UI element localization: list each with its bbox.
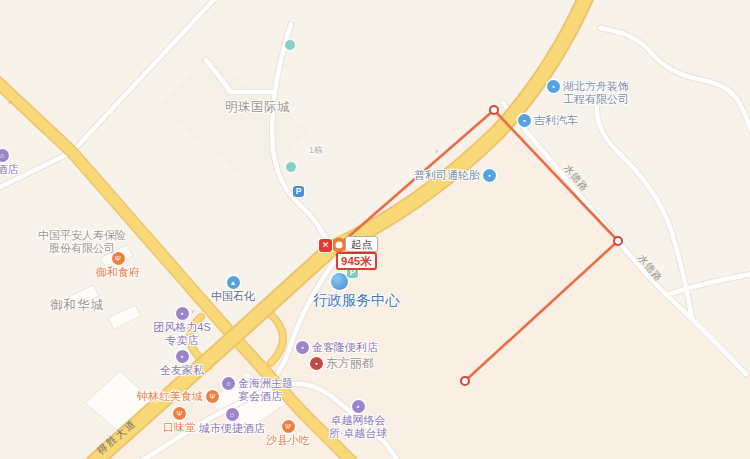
food-icon: Ψ (112, 252, 125, 265)
food-icon: Ψ (173, 407, 186, 420)
poi-bridgestone[interactable]: ▪ 普利司通轮胎 (414, 169, 496, 182)
poi-label: 中国石化 (211, 290, 255, 303)
poi-label: 东方丽都 (326, 357, 374, 370)
car-icon: ▪ (518, 114, 531, 127)
billiards-icon: ▪ (352, 400, 365, 413)
poi-yuhe-restaurant[interactable]: Ψ 御和食府 (96, 252, 140, 279)
poi-label: 湖北方舟装饰工程有限公司 (563, 80, 629, 105)
poi-zhuoyue-club[interactable]: ▪ 卓越网络会所·卓越台球 (326, 400, 390, 439)
gas-station-icon: ▲ (227, 276, 240, 289)
residence-icon: ▪ (310, 357, 323, 370)
poi-quanyou-furniture[interactable]: ▪ 全友家私 (160, 350, 204, 377)
poi-label: 普利司通轮胎 (414, 169, 480, 182)
measure-delete-button[interactable]: ✕ (319, 239, 332, 252)
poi-mingzhu-international[interactable]: 明珠国际城 (225, 101, 290, 114)
poi-label: 御和食府 (96, 266, 140, 279)
poi-dongfang-lidu[interactable]: ▪ 东方丽都 (310, 357, 374, 370)
poi-label: 沙县小吃 (266, 434, 310, 447)
poi-label: 中国平安人寿保险股份有限公司 (38, 229, 126, 254)
food-icon: Ψ (206, 390, 219, 403)
poi-label: 金客隆便利店 (312, 341, 378, 354)
poi-label: 行政服务中心 (313, 291, 400, 310)
poi-label: 明珠国际城 (225, 101, 290, 114)
poi-jinkelong-store[interactable]: ▪ 金客隆便利店 (296, 341, 378, 354)
poi-shaxian-snacks[interactable]: Ψ 沙县小吃 (266, 420, 310, 447)
government-poi-icon (331, 273, 348, 290)
poi-pingan-insurance[interactable]: 中国平安人寿保险股份有限公司 (38, 229, 126, 254)
hotel-icon: ⌂ (226, 408, 239, 421)
shop-icon: ▪ (176, 307, 189, 320)
poi-label: 团风格力4S专卖店 (153, 321, 210, 346)
measure-start-label: 起点 (345, 236, 378, 252)
area-label-yuhe-huacheng: 御和华城 (50, 299, 104, 312)
company-icon: ▪ (547, 80, 560, 93)
poi-label: 御和华城 (50, 299, 104, 312)
poi-label: 大酒店 (0, 163, 19, 176)
poi-label: 吉利汽车 (534, 114, 578, 127)
measure-vertex[interactable] (461, 377, 469, 385)
furniture-icon: ▪ (176, 350, 189, 363)
hotel-icon: ⌂ (0, 149, 9, 162)
poi-hotel-left-edge[interactable]: ⌂ 大酒店 (0, 149, 22, 176)
measure-vertex[interactable] (614, 237, 622, 245)
poi-label: 全友家私 (160, 364, 204, 377)
poi-admin-service-center[interactable]: P 行政服务中心 (313, 265, 433, 307)
poi-label: 金海洲主题宴会酒店 (238, 377, 293, 402)
transit-dot-icon (286, 162, 296, 172)
poi-sinopec[interactable]: ▲ 中国石化 (211, 276, 255, 303)
parking-icon[interactable]: P (293, 186, 304, 197)
measure-start-marker[interactable] (334, 240, 345, 251)
poi-geely-auto[interactable]: ▪ 吉利汽车 (518, 114, 578, 127)
hotel-icon: ⌂ (222, 377, 235, 390)
food-icon: Ψ (282, 420, 295, 433)
poi-label: 钟林红美食城 (137, 390, 203, 403)
map-canvas[interactable]: ‹ ‹ ‹ 得胜大道 水德路 水德路 P ⌂ 大酒店 明珠国际城 1栋 ▪ 湖北… (0, 0, 750, 459)
store-icon: ▪ (296, 341, 309, 354)
poi-zhonglinhong-food[interactable]: Ψ 钟林红美食城 (137, 390, 219, 403)
poi-label: 卓越网络会所·卓越台球 (329, 414, 388, 439)
transit-dot-icon (285, 40, 295, 50)
poi-label: 城市便捷酒店 (199, 422, 265, 435)
poi-jinhaizhou-hotel[interactable]: ⌂ 金海洲主题宴会酒店 (222, 377, 293, 402)
poi-hubei-fangzhou[interactable]: ▪ 湖北方舟装饰工程有限公司 (547, 80, 629, 105)
poi-kouweitang[interactable]: Ψ 口味堂 (163, 407, 196, 434)
measure-distance-badge: 945米 (336, 252, 377, 270)
car-icon: ▪ (483, 169, 496, 182)
building-number-label: 1栋 (309, 144, 323, 157)
poi-label: 1栋 (309, 144, 323, 157)
measure-vertex[interactable] (490, 106, 498, 114)
poi-tuanfeng-gree-4s[interactable]: ▪ 团风格力4S专卖店 (150, 307, 214, 346)
poi-label: 口味堂 (163, 421, 196, 434)
poi-city-comfort-inn[interactable]: ⌂ 城市便捷酒店 (199, 408, 265, 435)
